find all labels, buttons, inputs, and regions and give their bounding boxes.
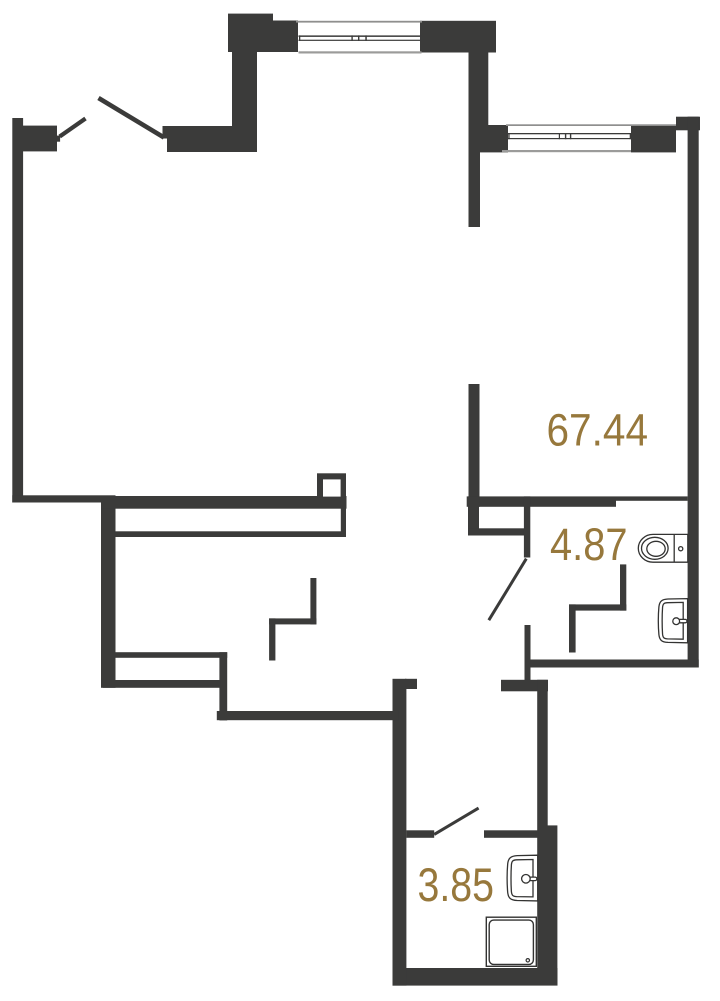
svg-text:67.44: 67.44 <box>547 405 649 456</box>
svg-text:4.87: 4.87 <box>550 519 628 570</box>
svg-text:3.85: 3.85 <box>418 858 495 911</box>
